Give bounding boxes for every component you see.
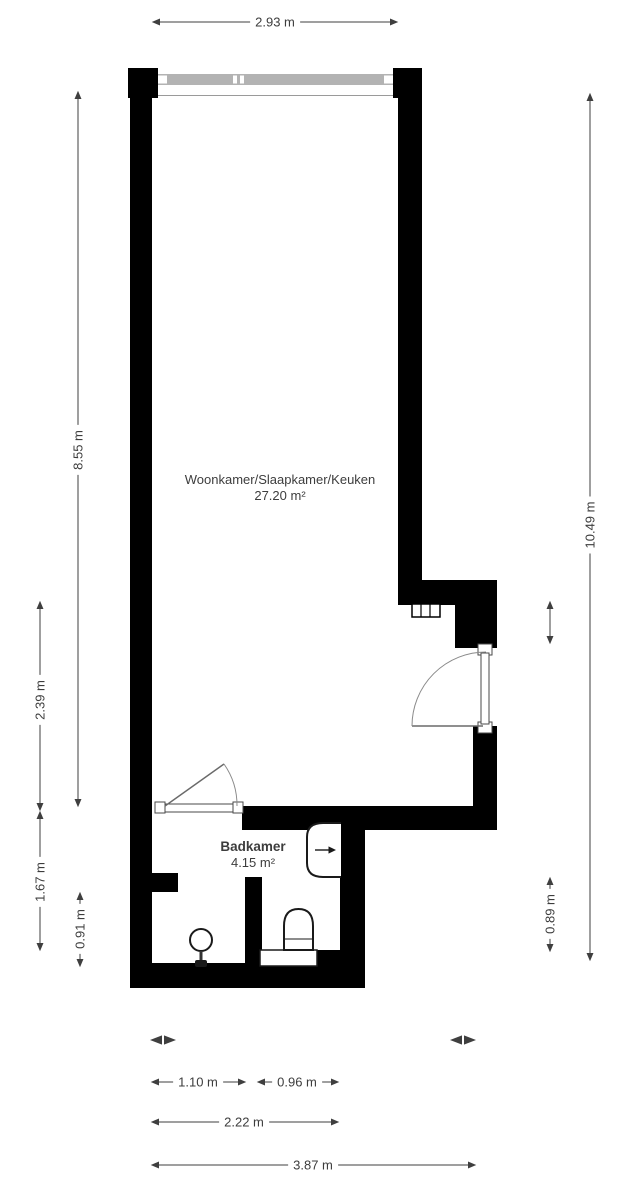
living-room-name: Woonkamer/Slaapkamer/Keuken xyxy=(185,472,376,488)
fixtures xyxy=(190,604,440,967)
door-jamb xyxy=(233,802,243,813)
bathroom-name: Badkamer xyxy=(220,839,285,855)
bathroom-area: 4.15 m² xyxy=(220,855,285,871)
window-mullion xyxy=(240,76,244,84)
dim-label-bottom-shower: 1.10 m xyxy=(173,1075,223,1090)
floor-plan: 2.93 m 8.55 m 2.39 m 1.67 m 0.91 m 10.49… xyxy=(0,0,631,1200)
living-room-area: 27.20 m² xyxy=(185,488,376,504)
dim-label-bottom-toilet: 0.96 m xyxy=(272,1075,322,1090)
entry-door xyxy=(412,644,492,733)
dim-label-left-shower: 0.91 m xyxy=(73,904,88,954)
door-panel xyxy=(481,653,489,724)
wall-segment xyxy=(152,873,178,892)
dim-label-left-lower: 2.39 m xyxy=(33,675,48,725)
floor-plan-drawing xyxy=(0,0,631,1200)
dim-label-bottom-total: 3.87 m xyxy=(288,1158,338,1173)
dim-label-right-total: 10.49 m xyxy=(583,497,598,554)
wall-segment xyxy=(130,68,152,988)
wall-segment xyxy=(398,580,497,605)
wall-segment xyxy=(398,68,422,582)
door-leaf xyxy=(165,764,224,806)
bathroom-label: Badkamer 4.15 m² xyxy=(220,839,285,871)
wall-segment xyxy=(316,950,365,966)
dim-label-left-living: 8.55 m xyxy=(71,425,86,475)
wall-segment xyxy=(455,605,497,648)
toilet-icon xyxy=(260,909,317,966)
shower-icon xyxy=(190,929,212,967)
dim-label-left-bathroom: 1.67 m xyxy=(33,857,48,907)
washbasin-icon xyxy=(307,823,341,877)
door-swing-arc-icon xyxy=(412,652,486,726)
wall-segment xyxy=(473,726,497,808)
bathroom-door xyxy=(155,764,243,813)
door-threshold xyxy=(155,804,243,812)
intercom-box-icon xyxy=(412,604,440,617)
wall-segment xyxy=(130,963,365,988)
door-swing-arc-icon xyxy=(224,764,237,806)
dim-label-right-toilet: 0.89 m xyxy=(543,889,558,939)
wall-thickness-arrows xyxy=(150,1035,476,1044)
wall-segment xyxy=(242,806,497,830)
window xyxy=(158,74,393,96)
window-jamb xyxy=(384,76,393,84)
dimension-lines xyxy=(40,22,590,1165)
dim-label-top-width: 2.93 m xyxy=(250,15,300,30)
window-mullion xyxy=(233,76,237,84)
window-jamb xyxy=(158,76,167,84)
door-jamb xyxy=(155,802,165,813)
living-room-label: Woonkamer/Slaapkamer/Keuken 27.20 m² xyxy=(185,472,376,504)
dim-label-bottom-bathroom: 2.22 m xyxy=(219,1115,269,1130)
window-glass xyxy=(158,74,393,85)
